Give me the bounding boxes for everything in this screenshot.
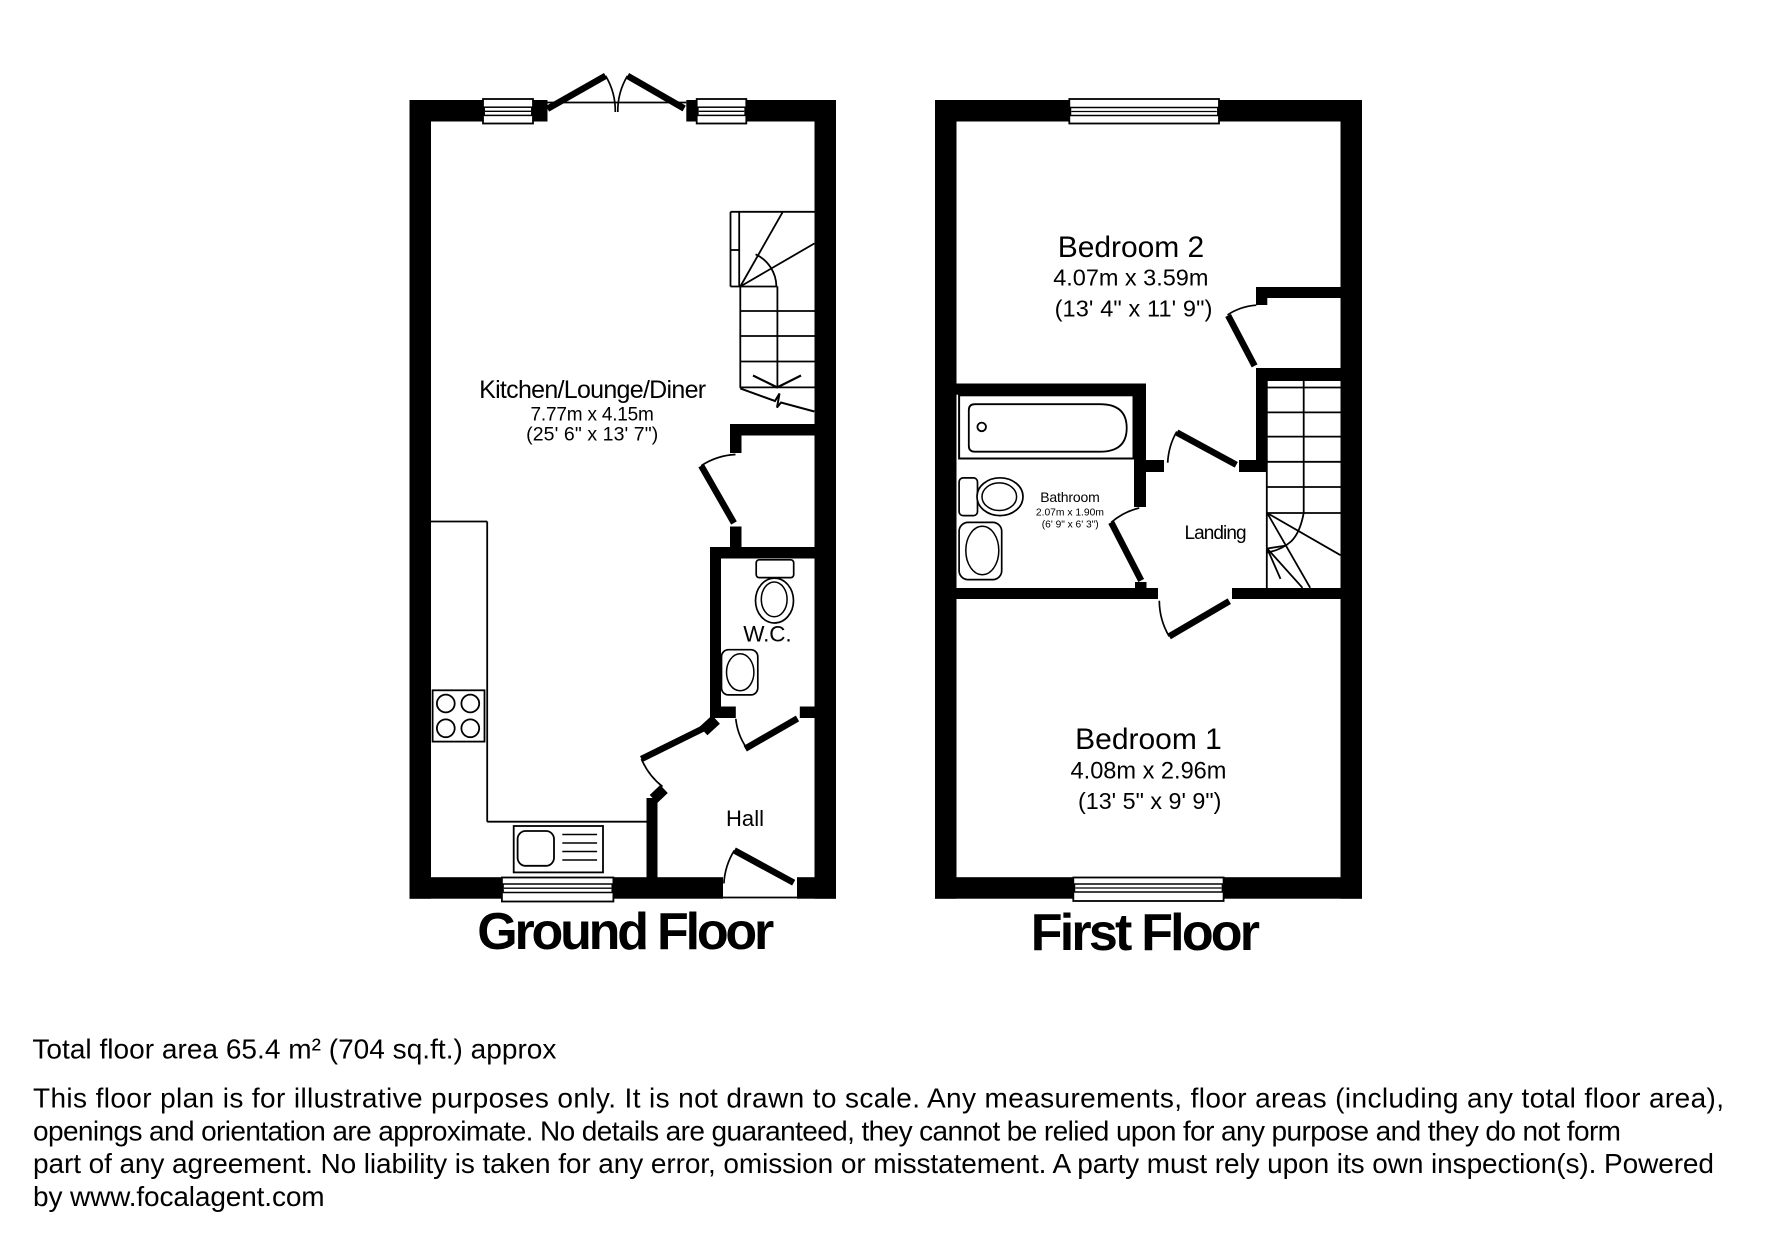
svg-text:Bedroom 1: Bedroom 1 [1075, 723, 1222, 756]
svg-text:4.08m x 2.96m: 4.08m x 2.96m [1071, 759, 1227, 785]
svg-text:4.07m x 3.59m: 4.07m x 3.59m [1053, 265, 1208, 291]
svg-text:W.C.: W.C. [743, 622, 791, 647]
svg-text:Landing: Landing [1184, 523, 1246, 544]
svg-text:Bedroom 2: Bedroom 2 [1058, 231, 1204, 264]
svg-text:(25' 6" x 13' 7"): (25' 6" x 13' 7") [526, 424, 658, 446]
svg-text:Hall: Hall [726, 806, 764, 831]
svg-text:part of any agreement. No liab: part of any agreement. No liability is t… [33, 1148, 1714, 1179]
svg-text:This floor plan is for illustr: This floor plan is for illustrative purp… [33, 1083, 1724, 1114]
svg-text:Kitchen/Lounge/Diner: Kitchen/Lounge/Diner [479, 376, 706, 404]
svg-text:2.07m x 1.90m: 2.07m x 1.90m [1036, 508, 1104, 519]
svg-text:First Floor: First Floor [1031, 904, 1260, 962]
svg-text:(13' 4" x 11' 9"): (13' 4" x 11' 9") [1055, 296, 1213, 322]
svg-text:Bathroom: Bathroom [1040, 489, 1100, 505]
svg-text:Total floor area 65.4 m² (704: Total floor area 65.4 m² (704 sq.ft.) ap… [32, 1034, 556, 1065]
svg-text:Ground Floor: Ground Floor [477, 903, 774, 961]
svg-text:openings and orientation are a: openings and orientation are approximate… [33, 1115, 1621, 1146]
svg-text:(13' 5" x 9' 9"): (13' 5" x 9' 9") [1078, 788, 1222, 814]
svg-text:(6' 9" x 6' 3"): (6' 9" x 6' 3") [1042, 519, 1099, 530]
svg-text:by www.focalagent.com: by www.focalagent.com [33, 1181, 325, 1212]
